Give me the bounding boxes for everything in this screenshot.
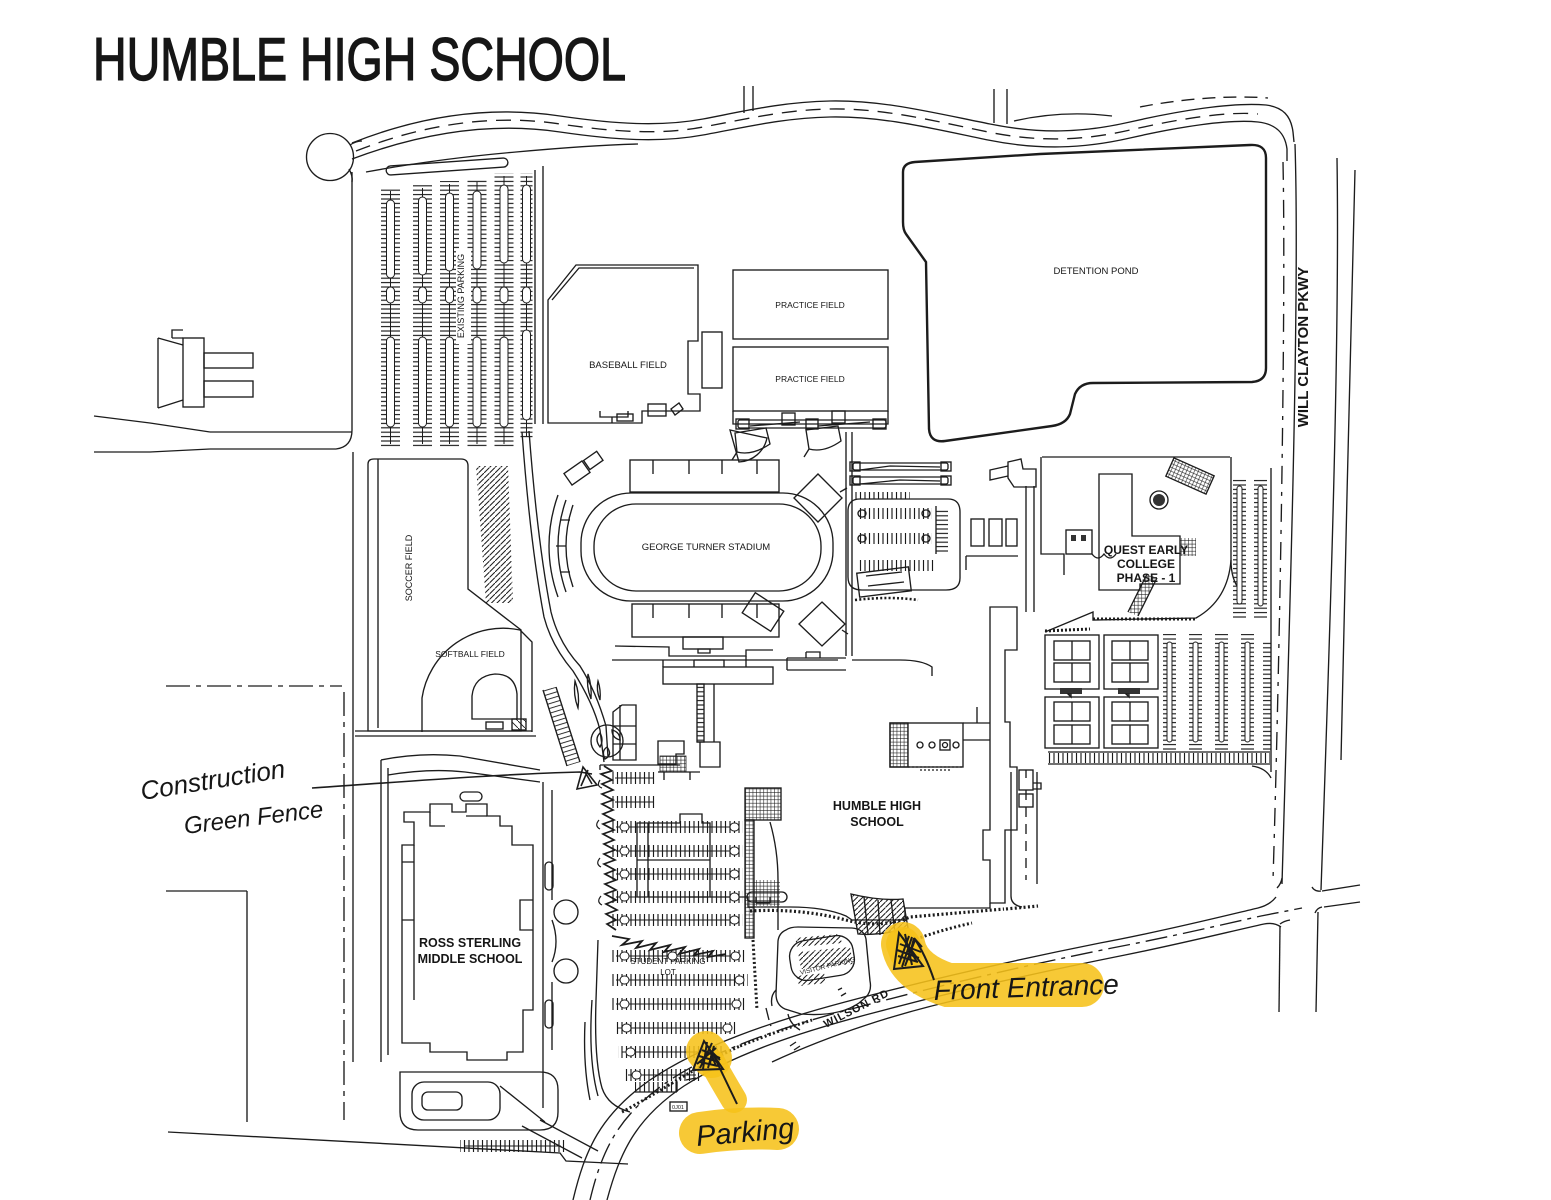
svg-text:WILSON RD: WILSON RD [822, 987, 892, 1030]
svg-text:0J01: 0J01 [672, 1105, 684, 1111]
svg-text:WILL CLAYTON PKWY: WILL CLAYTON PKWY [1295, 267, 1312, 428]
svg-text:QUEST EARLY: QUEST EARLY [1104, 543, 1188, 557]
svg-text:Front Entrance: Front Entrance [933, 969, 1119, 1006]
svg-text:PRACTICE FIELD: PRACTICE FIELD [775, 300, 844, 310]
svg-text:COLLEGE: COLLEGE [1117, 557, 1175, 571]
svg-text:SCHOOL: SCHOOL [850, 815, 904, 829]
svg-text:BASEBALL FIELD: BASEBALL FIELD [589, 360, 667, 371]
svg-text:HUMBLE HIGH SCHOOL: HUMBLE HIGH SCHOOL [93, 26, 626, 93]
svg-text:DETENTION POND: DETENTION POND [1054, 266, 1139, 277]
svg-text:MIDDLE SCHOOL: MIDDLE SCHOOL [418, 952, 523, 966]
svg-text:EXISTING PARKING: EXISTING PARKING [456, 254, 466, 338]
svg-text:GEORGE TURNER STADIUM: GEORGE TURNER STADIUM [642, 542, 771, 553]
svg-text:ROSS STERLING: ROSS STERLING [419, 936, 521, 950]
svg-text:SOFTBALL FIELD: SOFTBALL FIELD [435, 649, 505, 659]
svg-text:SOCCER FIELD: SOCCER FIELD [404, 534, 414, 601]
svg-text:HUMBLE HIGH: HUMBLE HIGH [833, 799, 921, 813]
svg-text:Construction: Construction [138, 753, 287, 805]
svg-text:PRACTICE FIELD: PRACTICE FIELD [775, 374, 844, 384]
svg-text:Green Fence: Green Fence [182, 796, 324, 840]
